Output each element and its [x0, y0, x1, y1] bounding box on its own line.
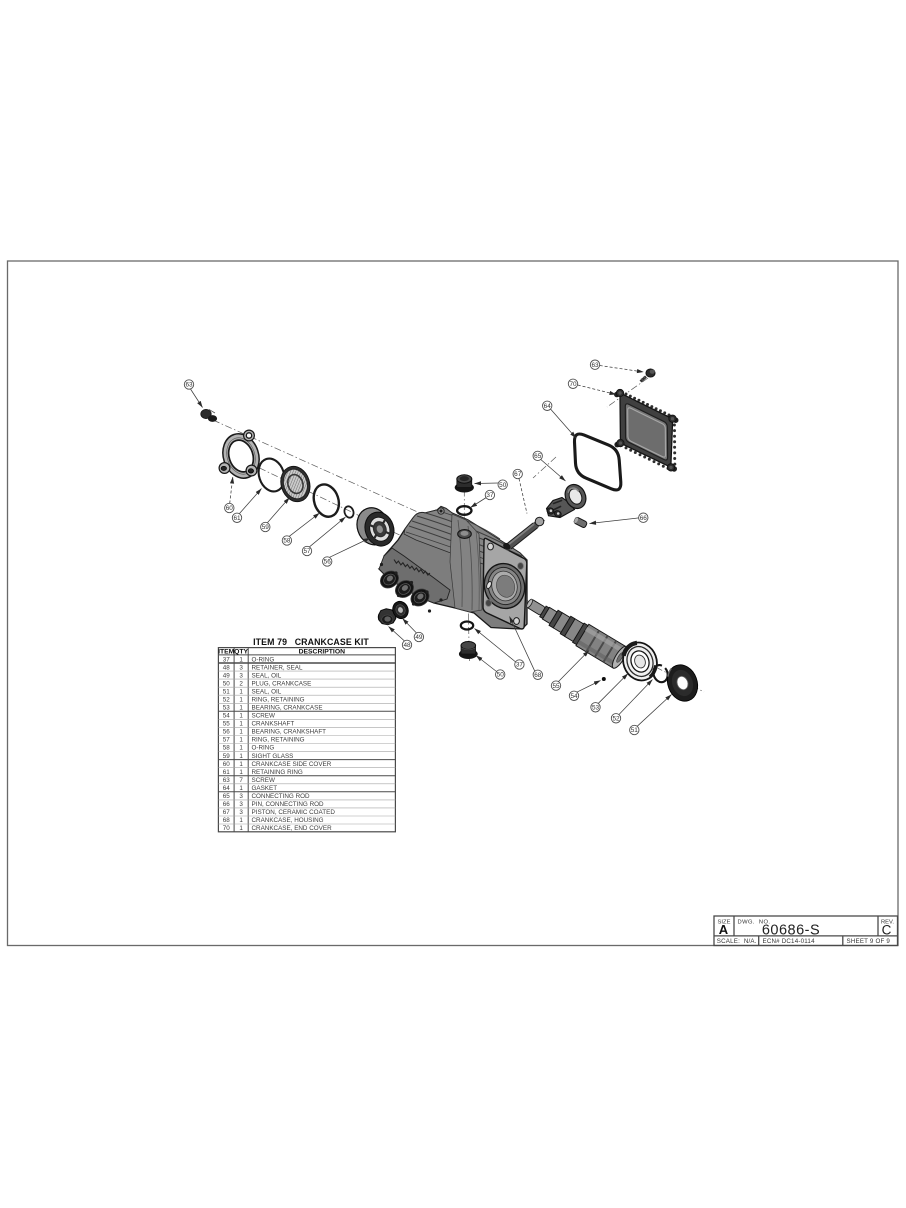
- svg-text:56: 56: [223, 729, 231, 736]
- svg-text:1: 1: [239, 769, 243, 776]
- svg-text:PLUG, CRANKCASE: PLUG, CRANKCASE: [252, 680, 312, 687]
- svg-text:63: 63: [223, 777, 231, 784]
- svg-text:1: 1: [239, 689, 243, 696]
- svg-text:RING, RETAINING: RING, RETAINING: [252, 697, 305, 704]
- svg-text:37: 37: [516, 662, 524, 669]
- svg-text:CRANKCASE, END COVER: CRANKCASE, END COVER: [252, 825, 333, 832]
- svg-text:1: 1: [239, 825, 243, 832]
- svg-text:PIN, CONNECTING ROD: PIN, CONNECTING ROD: [252, 801, 325, 808]
- svg-text:1: 1: [239, 745, 243, 752]
- svg-text:1: 1: [239, 737, 243, 744]
- svg-text:60: 60: [223, 761, 231, 768]
- svg-text:51: 51: [631, 727, 639, 734]
- svg-text:3: 3: [239, 664, 243, 671]
- svg-text:GASKET: GASKET: [252, 785, 278, 792]
- svg-text:C: C: [882, 923, 892, 938]
- svg-text:A: A: [719, 922, 729, 937]
- svg-text:1: 1: [239, 705, 243, 712]
- svg-text:ECN# DC14-0114: ECN# DC14-0114: [763, 938, 816, 945]
- svg-text:55: 55: [223, 721, 231, 728]
- svg-text:59: 59: [223, 753, 231, 760]
- svg-text:52: 52: [223, 697, 231, 704]
- svg-text:SEAL, OIL: SEAL, OIL: [252, 689, 282, 696]
- svg-text:ITEM 79 CRANKCASE KIT: ITEM 79 CRANKCASE KIT: [253, 637, 369, 647]
- svg-text:3: 3: [239, 809, 243, 816]
- svg-text:SEAL, OIL: SEAL, OIL: [252, 672, 282, 679]
- svg-text:59: 59: [262, 524, 270, 531]
- svg-text:1: 1: [239, 729, 243, 736]
- svg-text:2: 2: [239, 680, 243, 687]
- svg-text:1: 1: [239, 785, 243, 792]
- svg-text:52: 52: [612, 716, 620, 723]
- svg-text:63: 63: [185, 382, 193, 389]
- svg-text:1: 1: [239, 761, 243, 768]
- svg-text:54: 54: [223, 713, 231, 720]
- svg-text:61: 61: [223, 769, 231, 776]
- svg-text:60: 60: [226, 505, 234, 512]
- svg-text:SHEET 9 OF 9: SHEET 9 OF 9: [847, 938, 891, 945]
- svg-text:CRANKCASE, HOUSING: CRANKCASE, HOUSING: [252, 817, 324, 824]
- svg-text:BEARING, CRANKCASE: BEARING, CRANKCASE: [252, 705, 323, 712]
- svg-text:70: 70: [223, 825, 231, 832]
- svg-text:61: 61: [233, 515, 241, 522]
- svg-text:53: 53: [592, 705, 600, 712]
- svg-text:SCREW: SCREW: [252, 713, 275, 720]
- svg-text:CRANKSHAFT: CRANKSHAFT: [252, 721, 295, 728]
- svg-text:1: 1: [239, 697, 243, 704]
- svg-text:SCREW: SCREW: [252, 777, 275, 784]
- svg-text:50: 50: [499, 482, 507, 489]
- svg-text:3: 3: [239, 801, 243, 808]
- svg-text:64: 64: [223, 785, 231, 792]
- svg-text:3: 3: [239, 793, 243, 800]
- svg-text:1: 1: [239, 817, 243, 824]
- svg-text:RETAINING RING: RETAINING RING: [252, 769, 303, 776]
- svg-text:65: 65: [223, 793, 231, 800]
- svg-text:50: 50: [497, 672, 505, 679]
- svg-text:68: 68: [534, 672, 542, 679]
- svg-text:BEARING, CRANKSHAFT: BEARING, CRANKSHAFT: [252, 729, 327, 736]
- svg-text:66: 66: [640, 515, 648, 522]
- svg-text:57: 57: [303, 548, 311, 555]
- svg-text:64: 64: [544, 403, 552, 410]
- svg-text:1: 1: [239, 713, 243, 720]
- svg-text:QTY: QTY: [234, 648, 248, 655]
- svg-text:48: 48: [223, 664, 231, 671]
- svg-text:63: 63: [591, 362, 599, 369]
- svg-text:48: 48: [403, 642, 411, 649]
- svg-text:53: 53: [223, 705, 231, 712]
- svg-text:58: 58: [283, 538, 291, 545]
- svg-text:PISTON, CERAMIC COATED: PISTON, CERAMIC COATED: [252, 809, 336, 816]
- svg-text:55: 55: [552, 683, 560, 690]
- svg-text:37: 37: [486, 492, 494, 499]
- svg-text:68: 68: [223, 817, 231, 824]
- svg-text:60686-S: 60686-S: [762, 923, 820, 939]
- svg-text:67: 67: [223, 809, 231, 816]
- svg-text:65: 65: [534, 453, 542, 460]
- svg-text:CRANKCASE SIDE COVER: CRANKCASE SIDE COVER: [252, 761, 332, 768]
- svg-text:58: 58: [223, 745, 231, 752]
- svg-text:CONNECTING ROD: CONNECTING ROD: [252, 793, 311, 800]
- svg-text:7: 7: [239, 777, 243, 784]
- svg-text:67: 67: [514, 471, 522, 478]
- svg-text:DESCRIPTION: DESCRIPTION: [299, 648, 346, 655]
- svg-text:51: 51: [223, 689, 231, 696]
- svg-text:1: 1: [239, 753, 243, 760]
- svg-text:3: 3: [239, 672, 243, 679]
- svg-text:ITEM: ITEM: [218, 648, 235, 655]
- svg-text:SCALE: N/A.: SCALE: N/A.: [717, 938, 757, 945]
- svg-text:49: 49: [415, 634, 423, 641]
- svg-text:1: 1: [239, 721, 243, 728]
- svg-text:49: 49: [223, 672, 231, 679]
- svg-text:54: 54: [570, 693, 578, 700]
- svg-text:RETAINER, SEAL: RETAINER, SEAL: [252, 664, 303, 671]
- svg-text:66: 66: [223, 801, 231, 808]
- svg-text:O-RING: O-RING: [252, 656, 275, 663]
- svg-text:57: 57: [223, 737, 231, 744]
- svg-text:SIGHT GLASS: SIGHT GLASS: [252, 753, 294, 760]
- svg-text:RING, RETAINING: RING, RETAINING: [252, 737, 305, 744]
- svg-text:37: 37: [223, 656, 231, 663]
- svg-text:1: 1: [239, 656, 243, 663]
- svg-text:56: 56: [324, 559, 332, 566]
- svg-text:50: 50: [223, 680, 231, 687]
- svg-text:70: 70: [569, 381, 577, 388]
- svg-text:O-RING: O-RING: [252, 745, 275, 752]
